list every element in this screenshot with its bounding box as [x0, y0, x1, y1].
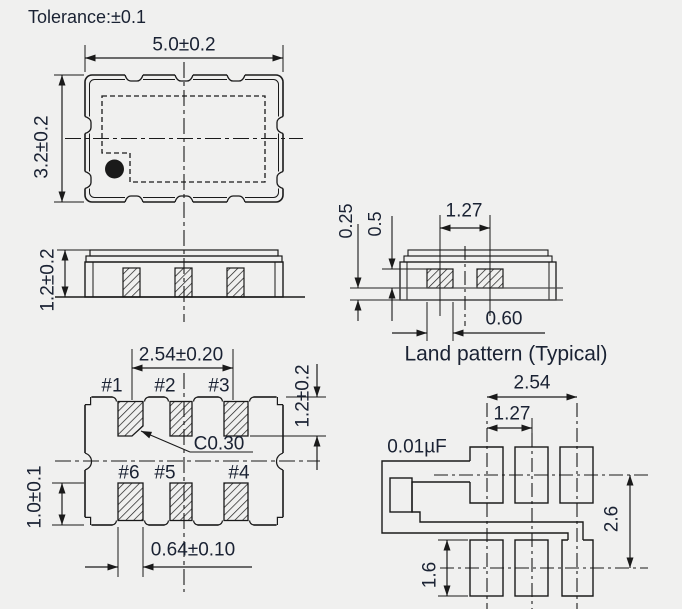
- pad-label-5: #5: [154, 464, 175, 483]
- pad-4: [224, 483, 248, 521]
- land-thickness-dim: 0.25: [337, 203, 355, 238]
- pad-label-3: #3: [208, 377, 229, 396]
- pin1-marker-dot: [105, 160, 124, 179]
- land-width-dim: 0.60: [486, 310, 523, 329]
- pad-3: [224, 402, 248, 437]
- pad-5: [170, 483, 192, 521]
- bottom-view-pad-length-bottom-dim: 1.0±0.1: [26, 465, 45, 528]
- land-height-dim: 0.5: [366, 211, 384, 236]
- side-view-height-dim: 1.2±0.2: [39, 248, 58, 311]
- land-pattern-title: Land pattern (Typical): [404, 344, 607, 365]
- capacitor-value-label: 0.01µF: [387, 438, 447, 457]
- capacitor-trace-inner: [412, 482, 583, 540]
- pad-label-6: #6: [118, 464, 139, 483]
- bottom-view-pitch-dim: 2.54±0.20: [139, 346, 223, 365]
- pad-label-2: #2: [154, 377, 175, 396]
- chamfer-dim: C0.30: [194, 435, 245, 454]
- technical-drawing-svg: [0, 0, 682, 609]
- tolerance-note: Tolerance:±0.1: [28, 8, 146, 26]
- lp-row-pitch-dim: 2.6: [603, 506, 622, 532]
- lp-inner-pitch-dim: 1.27: [494, 405, 531, 424]
- capacitor-trace-outer: [382, 461, 568, 540]
- bottom-view-pad-length-top-dim: 1.2±0.2: [294, 364, 313, 427]
- bottom-view-pad-width-dim: 0.64±0.10: [151, 541, 235, 560]
- pad-6: [118, 483, 143, 521]
- pad-label-4: #4: [228, 464, 249, 483]
- side-view: [55, 250, 305, 297]
- land-side-pitch-dim: 1.27: [446, 202, 483, 221]
- pad-label-1: #1: [101, 377, 122, 396]
- technical-drawing-page: Tolerance:±0.1 5.0±0.2 3.2±0.2 1.2±0.2 2…: [0, 0, 682, 609]
- lp-pad-height-dim: 1.6: [421, 562, 440, 588]
- lp-outer-pitch-dim: 2.54: [514, 374, 551, 393]
- pad-2: [170, 402, 192, 437]
- pad-1: [118, 402, 143, 437]
- top-view-height-dim: 3.2±0.2: [33, 115, 52, 178]
- capacitor-body: [390, 478, 412, 512]
- top-view-width-dim: 5.0±0.2: [152, 36, 215, 55]
